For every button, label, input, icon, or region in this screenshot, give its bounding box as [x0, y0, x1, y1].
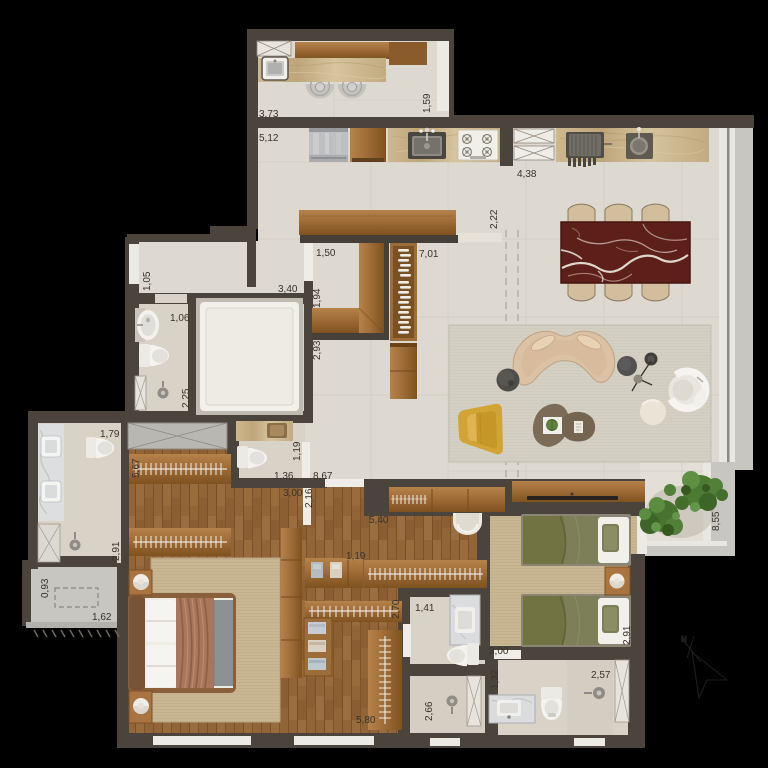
svg-text:5,80: 5,80: [356, 715, 376, 726]
svg-text:1,50: 1,50: [316, 248, 336, 259]
svg-text:2,91: 2,91: [622, 625, 633, 645]
svg-text:N: N: [681, 635, 687, 644]
svg-text:1,05: 1,05: [142, 271, 153, 291]
svg-text:2,57: 2,57: [591, 670, 611, 681]
svg-text:5,67: 5,67: [131, 458, 142, 478]
svg-text:1,62: 1,62: [92, 612, 112, 623]
svg-text:4,38: 4,38: [517, 169, 537, 180]
svg-text:1,59: 1,59: [422, 93, 433, 113]
svg-text:5,40: 5,40: [369, 515, 389, 526]
svg-text:1,32: 1,32: [490, 669, 501, 689]
svg-text:1,79: 1,79: [100, 429, 120, 440]
svg-text:2,22: 2,22: [489, 209, 500, 229]
svg-text:1,94: 1,94: [312, 288, 323, 308]
svg-text:3,00: 3,00: [489, 646, 509, 657]
svg-text:3,73: 3,73: [259, 109, 279, 120]
svg-text:1,19: 1,19: [346, 551, 366, 562]
svg-text:1,36: 1,36: [274, 471, 294, 482]
svg-text:8,67: 8,67: [313, 471, 333, 482]
svg-text:1,41: 1,41: [415, 603, 435, 614]
svg-text:5,12: 5,12: [259, 133, 279, 144]
svg-text:2,93: 2,93: [312, 340, 323, 360]
svg-text:1,06: 1,06: [170, 313, 190, 324]
svg-text:1,19: 1,19: [292, 441, 303, 461]
svg-text:2,25: 2,25: [181, 388, 192, 408]
svg-text:8,55: 8,55: [711, 511, 722, 531]
svg-text:2,91: 2,91: [111, 541, 122, 561]
svg-text:3,00: 3,00: [283, 488, 303, 499]
svg-text:2,16: 2,16: [304, 488, 315, 508]
svg-text:3,40: 3,40: [278, 284, 298, 295]
svg-text:2,66: 2,66: [424, 701, 435, 721]
svg-text:2,70: 2,70: [391, 599, 402, 619]
svg-text:0,93: 0,93: [40, 578, 51, 598]
svg-text:7,01: 7,01: [419, 249, 439, 260]
